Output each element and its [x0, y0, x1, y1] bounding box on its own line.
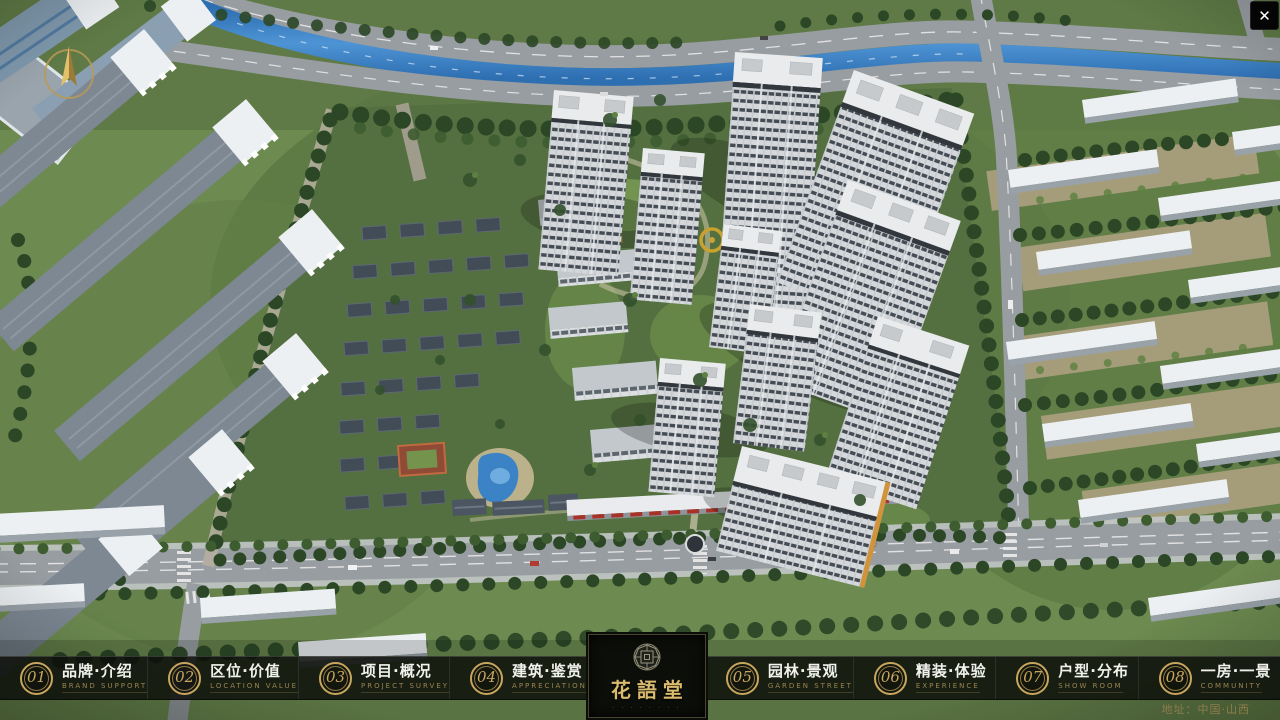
- nav-number: 06: [881, 668, 900, 686]
- nav-badge-02: 02: [168, 662, 201, 695]
- close-icon: ✕: [1258, 7, 1271, 25]
- nav-item-garden-landscape[interactable]: 05 园林·景观 GARDEN STREET: [706, 657, 854, 699]
- nav-label-zh: 项目·概况: [361, 663, 449, 680]
- brand-logo[interactable]: 花語堂 · · · · · · · ·: [588, 634, 706, 718]
- nav-label-en: LOCATION VALUE: [210, 683, 298, 693]
- close-button[interactable]: ✕: [1251, 2, 1278, 29]
- nav-item-project-survey[interactable]: 03 项目·概况 PROJECT SURVEY: [299, 657, 450, 699]
- nav-badge-03: 03: [319, 662, 352, 695]
- bottom-nav: 01 品牌·介绍 BRAND SUPPORT 02 区位·价值 LOCATION…: [0, 656, 1280, 700]
- nav-label-en: GARDEN STREET: [768, 683, 853, 693]
- nav-label-en: PROJECT SURVEY: [361, 683, 449, 693]
- nav-number: 03: [326, 668, 345, 686]
- nav-item-location-value[interactable]: 02 区位·价值 LOCATION VALUE: [148, 657, 299, 699]
- nav-badge-05: 05: [726, 662, 759, 695]
- brand-name: 花語堂: [605, 674, 689, 703]
- nav-badge-01: 01: [20, 662, 53, 695]
- nav-badge-07: 07: [1016, 662, 1049, 695]
- nav-item-brand-intro[interactable]: 01 品牌·介绍 BRAND SUPPORT: [0, 657, 148, 699]
- nav-label-zh: 区位·价值: [210, 663, 298, 680]
- nav-label-zh: 精装·体验: [916, 663, 987, 680]
- brand-seal-icon: [632, 642, 662, 672]
- nav-item-unit-layout[interactable]: 07 户型·分布 SHOW ROOM: [996, 657, 1138, 699]
- nav-label-zh: 品牌·介绍: [62, 663, 147, 680]
- nav-item-finish-experience[interactable]: 06 精装·体验 EXPERIENCE: [854, 657, 996, 699]
- nav-group-right: 05 园林·景观 GARDEN STREET 06 精装·体验 EXPERIEN…: [706, 657, 1280, 699]
- nav-number: 07: [1023, 668, 1042, 686]
- nav-label-zh: 户型·分布: [1058, 663, 1129, 680]
- nav-label-zh: 园林·景观: [768, 663, 853, 680]
- nav-item-architecture[interactable]: 04 建筑·鉴赏 APPRECIATION: [450, 657, 588, 699]
- nav-label-en: SHOW ROOM: [1058, 683, 1122, 693]
- app: ✕ 01 品牌·介绍 BRAND SUPPORT 02 区位·价值 LOCATI…: [0, 0, 1280, 720]
- nav-item-room-view[interactable]: 08 一房·一景 COMMUNITY: [1139, 657, 1280, 699]
- nav-label-zh: 一房·一景: [1201, 663, 1272, 680]
- nav-badge-04: 04: [470, 662, 503, 695]
- nav-label-en: APPRECIATION: [512, 683, 587, 693]
- nav-label-en: BRAND SUPPORT: [62, 683, 147, 693]
- nav-badge-08: 08: [1159, 662, 1192, 695]
- nav-number: 01: [27, 668, 46, 686]
- nav-label-en: EXPERIENCE: [916, 683, 980, 693]
- nav-label-en: COMMUNITY: [1201, 683, 1262, 693]
- nav-badge-06: 06: [874, 662, 907, 695]
- brand-logo-box: 花語堂 · · · · · · · ·: [588, 657, 706, 699]
- aerial-map: [0, 0, 1280, 720]
- address-text: 地址：中国·山西: [1162, 701, 1251, 717]
- nav-number: 08: [1166, 668, 1185, 686]
- nav-number: 05: [733, 668, 752, 686]
- nav-label-zh: 建筑·鉴赏: [512, 663, 587, 680]
- nav-number: 04: [477, 668, 496, 686]
- compass-icon: [36, 38, 102, 108]
- brand-tagline: · · · · · · · ·: [612, 705, 681, 711]
- nav-number: 02: [175, 668, 194, 686]
- nav-group-left: 01 品牌·介绍 BRAND SUPPORT 02 区位·价值 LOCATION…: [0, 657, 588, 699]
